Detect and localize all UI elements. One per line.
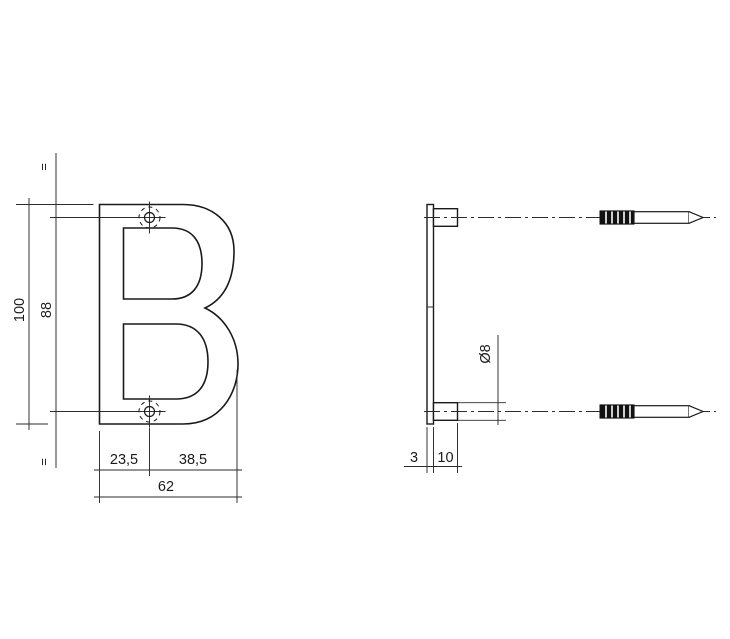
- front-view: 100 88 = = 23,5 38,5 62: [12, 153, 242, 503]
- letter-b-shape: [100, 205, 239, 425]
- dim-label-boss-length: 10: [437, 450, 453, 466]
- screw-shank: [634, 212, 689, 224]
- dim-label-overall-height: 100: [12, 298, 28, 322]
- screw-point: [689, 212, 703, 224]
- dim-label-boss-diameter: Ø8: [478, 344, 494, 363]
- plate-edge: [427, 205, 434, 425]
- equal-mark-top: =: [36, 163, 51, 171]
- screw-thread: [600, 405, 634, 418]
- equal-mark-bottom: =: [36, 458, 51, 466]
- dim-label-overall-width: 62: [158, 479, 174, 495]
- dim-label-hole-to-right: 38,5: [179, 452, 207, 468]
- screw-shank: [634, 406, 689, 418]
- screw-top: [600, 211, 703, 224]
- screw-bottom: [600, 405, 703, 418]
- side-view: Ø8 3 10: [404, 205, 716, 474]
- dim-label-hole-spacing: 88: [39, 302, 55, 318]
- screw-point: [689, 406, 703, 418]
- dim-label-plate-thickness: 3: [410, 450, 418, 466]
- dim-label-left-to-hole: 23,5: [110, 452, 138, 468]
- screw-thread: [600, 211, 634, 224]
- technical-drawing-page: 100 88 = = 23,5 38,5 62: [0, 0, 730, 639]
- drawing-sheet: 100 88 = = 23,5 38,5 62: [0, 0, 730, 639]
